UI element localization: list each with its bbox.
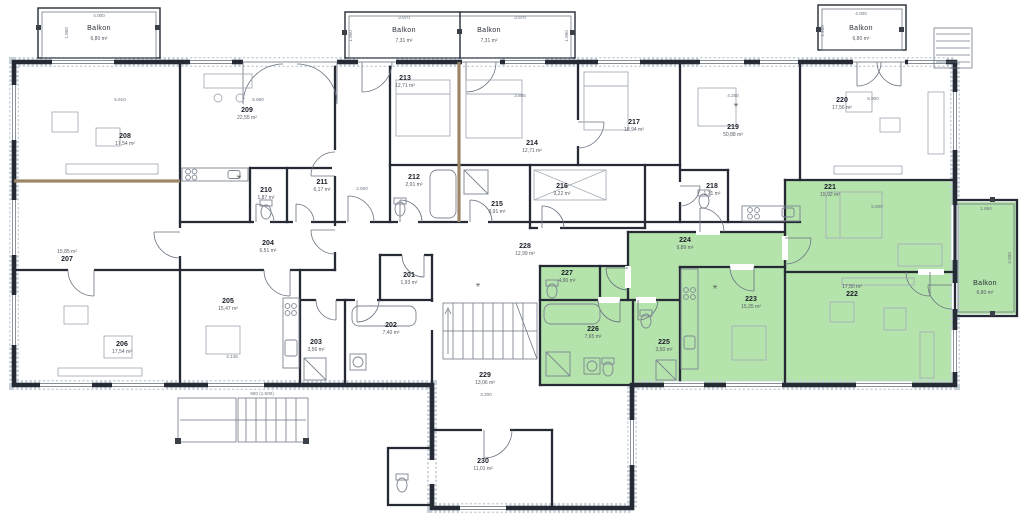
svg-text:17,50 m²: 17,50 m² bbox=[842, 284, 862, 290]
svg-text:12,71 m²: 12,71 m² bbox=[395, 83, 415, 89]
svg-text:15,47 m²: 15,47 m² bbox=[218, 306, 238, 312]
main-staircase bbox=[443, 303, 537, 359]
svg-text:12,99 m²: 12,99 m² bbox=[515, 251, 535, 257]
svg-text:3,91 m²: 3,91 m² bbox=[489, 209, 506, 215]
svg-text:201: 201 bbox=[403, 272, 415, 279]
svg-text:11,01 m²: 11,01 m² bbox=[473, 466, 493, 472]
svg-text:223: 223 bbox=[745, 296, 757, 303]
room-229-label: 22913,06 m² bbox=[475, 372, 495, 386]
svg-text:7,31 m²: 7,31 m² bbox=[481, 38, 498, 44]
svg-text:4.000: 4.000 bbox=[855, 11, 867, 16]
svg-text:6,80 m²: 6,80 m² bbox=[977, 290, 994, 296]
svg-text:1,71 m²: 1,71 m² bbox=[704, 191, 721, 197]
svg-text:222: 222 bbox=[846, 291, 858, 298]
svg-text:7,65 m²: 7,65 m² bbox=[585, 334, 602, 340]
svg-text:216: 216 bbox=[556, 183, 568, 190]
exterior-staircase bbox=[175, 398, 309, 444]
svg-text:4,90 m²: 4,90 m² bbox=[559, 278, 576, 284]
svg-text:Balkon: Balkon bbox=[392, 27, 416, 34]
svg-text:6,80 m²: 6,80 m² bbox=[91, 36, 108, 42]
svg-text:6,51 m²: 6,51 m² bbox=[260, 248, 277, 254]
svg-text:9,89 m²: 9,89 m² bbox=[677, 245, 694, 251]
svg-text:1,93 m²: 1,93 m² bbox=[401, 280, 418, 286]
room-212-label: 2122,91 m² bbox=[406, 174, 423, 188]
svg-text:5.660: 5.660 bbox=[252, 97, 264, 102]
room-207-label: 15,85 m²207 bbox=[57, 249, 77, 263]
svg-text:7,31 m²: 7,31 m² bbox=[396, 38, 413, 44]
room-209-label: 20922,55 m² bbox=[237, 107, 257, 121]
svg-text:4.000: 4.000 bbox=[1007, 252, 1012, 264]
svg-text:13,06 m²: 13,06 m² bbox=[475, 380, 495, 386]
balcony-mid-left-label: Balkon7,31 m² bbox=[392, 27, 416, 44]
balcony-top-middle bbox=[342, 12, 575, 58]
svg-text:Balkon: Balkon bbox=[87, 25, 111, 32]
floor-plan-drawing: ✳ ✳ ✳ ✳ 2011,93 m² 2027,40 m² 2033,56 m²… bbox=[0, 0, 1024, 521]
svg-text:1.950: 1.950 bbox=[980, 206, 992, 211]
svg-text:1.950: 1.950 bbox=[64, 27, 69, 39]
svg-text:4.000: 4.000 bbox=[93, 13, 105, 18]
room-213-label: 21312,71 m² bbox=[395, 75, 415, 89]
svg-text:4.250: 4.250 bbox=[727, 93, 739, 98]
svg-text:214: 214 bbox=[526, 140, 538, 147]
svg-text:211: 211 bbox=[316, 179, 327, 186]
svg-text:3,56 m²: 3,56 m² bbox=[308, 347, 325, 353]
svg-text:3.200: 3.200 bbox=[480, 392, 492, 397]
vent-icon: ✳ bbox=[236, 174, 241, 181]
room-220-label: 22017,56 m² bbox=[832, 97, 852, 111]
room-215-label: 2153,91 m² bbox=[489, 201, 506, 215]
svg-text:4.145: 4.145 bbox=[226, 354, 238, 359]
svg-text:15,25 m²: 15,25 m² bbox=[741, 304, 761, 310]
svg-text:Balkon: Balkon bbox=[849, 25, 873, 32]
svg-text:228: 228 bbox=[519, 243, 531, 250]
svg-text:50,88 m²: 50,88 m² bbox=[723, 132, 743, 138]
balcony-top-left-label: Balkon6,80 m² bbox=[87, 25, 111, 42]
svg-text:218: 218 bbox=[706, 183, 718, 190]
svg-text:205: 205 bbox=[222, 298, 234, 305]
svg-text:206: 206 bbox=[116, 341, 128, 348]
svg-text:900 (1.500): 900 (1.500) bbox=[250, 391, 274, 396]
svg-text:17,54 m²: 17,54 m² bbox=[115, 141, 135, 147]
corner-staircase bbox=[934, 28, 972, 68]
svg-text:208: 208 bbox=[119, 133, 131, 140]
floor-plan-canvas: ✳ ✳ ✳ ✳ 2011,93 m² 2027,40 m² 2033,56 m²… bbox=[0, 0, 1024, 521]
svg-text:2.500: 2.500 bbox=[356, 186, 368, 191]
room-228-label: 22812,99 m² bbox=[515, 243, 535, 257]
balcony-top-right-label: Balkon6,80 m² bbox=[849, 25, 873, 42]
svg-text:Balkon: Balkon bbox=[477, 27, 501, 34]
room-205-label: 20515,47 m² bbox=[218, 298, 238, 312]
svg-text:3.970: 3.970 bbox=[514, 15, 526, 20]
svg-text:207: 207 bbox=[61, 256, 73, 263]
room-203-label: 2033,56 m² bbox=[308, 339, 325, 353]
room-211-label: 2116,17 m² bbox=[314, 179, 331, 193]
svg-text:12,71 m²: 12,71 m² bbox=[522, 148, 542, 154]
room-208-label: 20817,54 m² bbox=[115, 133, 135, 147]
svg-text:5.610: 5.610 bbox=[114, 97, 126, 102]
svg-text:6,17 m²: 6,17 m² bbox=[314, 187, 331, 193]
svg-text:229: 229 bbox=[479, 372, 491, 379]
svg-text:3.970: 3.970 bbox=[398, 15, 410, 20]
svg-text:219: 219 bbox=[727, 124, 739, 131]
svg-text:217: 217 bbox=[628, 119, 640, 126]
svg-text:1,87 m²: 1,87 m² bbox=[258, 195, 275, 201]
svg-text:3,50 m²: 3,50 m² bbox=[656, 347, 673, 353]
room-230-label: 23011,01 m² bbox=[473, 458, 493, 472]
svg-text:17,54 m²: 17,54 m² bbox=[112, 349, 132, 355]
svg-text:15,92 m²: 15,92 m² bbox=[820, 192, 840, 198]
svg-text:210: 210 bbox=[260, 187, 272, 194]
svg-text:226: 226 bbox=[587, 326, 599, 333]
room-214-label: 21412,71 m² bbox=[522, 140, 542, 154]
room-202-label: 2027,40 m² bbox=[383, 322, 400, 336]
svg-text:209: 209 bbox=[241, 107, 253, 114]
room-204-label: 2046,51 m² bbox=[260, 240, 277, 254]
svg-text:202: 202 bbox=[385, 322, 397, 329]
room-206-label: 20617,54 m² bbox=[112, 341, 132, 355]
svg-text:1.950: 1.950 bbox=[820, 25, 825, 37]
svg-text:224: 224 bbox=[679, 237, 691, 244]
svg-text:7,40 m²: 7,40 m² bbox=[383, 330, 400, 336]
svg-text:6,80 m²: 6,80 m² bbox=[853, 36, 870, 42]
svg-text:213: 213 bbox=[399, 75, 411, 82]
svg-text:1.950: 1.950 bbox=[348, 30, 353, 42]
svg-text:230: 230 bbox=[477, 458, 489, 465]
svg-text:5.900: 5.900 bbox=[867, 96, 879, 101]
room-210-label: 2101,87 m² bbox=[258, 187, 275, 201]
room-216-label: 2169,22 m² bbox=[554, 183, 571, 197]
svg-text:204: 204 bbox=[262, 240, 274, 247]
svg-text:5.900: 5.900 bbox=[871, 204, 883, 209]
room-201-label: 2011,93 m² bbox=[401, 272, 418, 286]
svg-text:212: 212 bbox=[408, 174, 420, 181]
svg-text:15,85 m²: 15,85 m² bbox=[57, 249, 77, 255]
svg-text:Balkon: Balkon bbox=[973, 280, 997, 287]
svg-text:17,56 m²: 17,56 m² bbox=[832, 105, 852, 111]
balcony-mid-right-label: Balkon7,31 m² bbox=[477, 27, 501, 44]
svg-text:221: 221 bbox=[824, 184, 836, 191]
vent-icon: ✳ bbox=[733, 102, 738, 109]
svg-text:220: 220 bbox=[836, 97, 848, 104]
svg-text:203: 203 bbox=[310, 339, 322, 346]
svg-text:227: 227 bbox=[561, 270, 573, 277]
vent-icon: ✳ bbox=[475, 282, 480, 289]
svg-text:225: 225 bbox=[658, 339, 670, 346]
svg-text:1.950: 1.950 bbox=[564, 30, 569, 42]
svg-text:9,22 m²: 9,22 m² bbox=[554, 191, 571, 197]
vent-icon: ✳ bbox=[712, 284, 717, 291]
svg-text:22,55 m²: 22,55 m² bbox=[237, 115, 257, 121]
svg-text:215: 215 bbox=[491, 201, 503, 208]
room-217-label: 21718,94 m² bbox=[624, 119, 644, 133]
svg-text:3.865: 3.865 bbox=[514, 93, 526, 98]
svg-text:18,94 m²: 18,94 m² bbox=[624, 127, 644, 133]
svg-text:2,91 m²: 2,91 m² bbox=[406, 182, 423, 188]
